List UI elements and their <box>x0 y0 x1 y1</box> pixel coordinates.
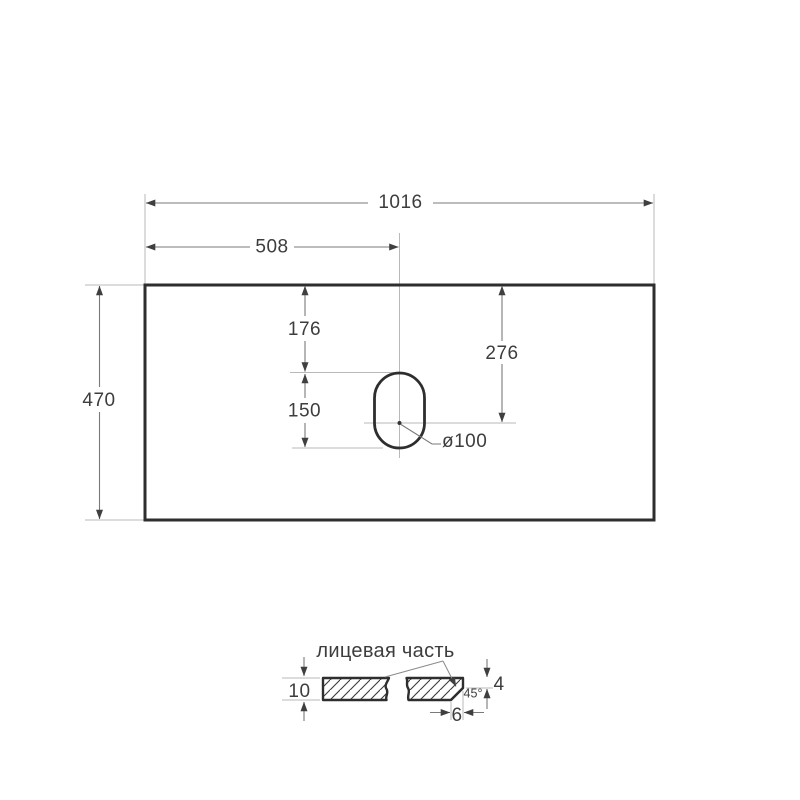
dim-10-label: 10 <box>288 681 310 702</box>
technical-drawing-page: 1016 508 470 176 150 276 ø100 <box>0 0 800 800</box>
dim-6-label: 6 <box>451 705 462 726</box>
face-side-label: лицевая часть <box>316 640 454 662</box>
dim-470-label: 470 <box>82 390 115 411</box>
section-view: лицевая часть 10 4 45° 6 <box>282 640 505 726</box>
dim-276-label: 276 <box>485 343 518 364</box>
dim-150-label: 150 <box>288 401 321 422</box>
top-view: 1016 508 470 176 150 276 ø100 <box>82 192 654 520</box>
face-leader-left-branch <box>385 661 443 677</box>
dim-176-label: 176 <box>288 319 321 340</box>
section-right-piece-chamfered <box>407 678 464 700</box>
dim-508-label: 508 <box>255 237 288 258</box>
drawing-canvas: 1016 508 470 176 150 276 ø100 <box>0 0 800 800</box>
dim-1016-label: 1016 <box>378 192 422 213</box>
dim-4-label: 4 <box>493 674 504 695</box>
chamfer-angle-label: 45° <box>464 687 483 701</box>
dimension-lines <box>100 203 654 519</box>
hole-center-point <box>398 421 402 425</box>
section-left-piece <box>323 678 389 700</box>
dim-diameter-label: ø100 <box>442 431 487 452</box>
extension-lines <box>85 194 654 520</box>
